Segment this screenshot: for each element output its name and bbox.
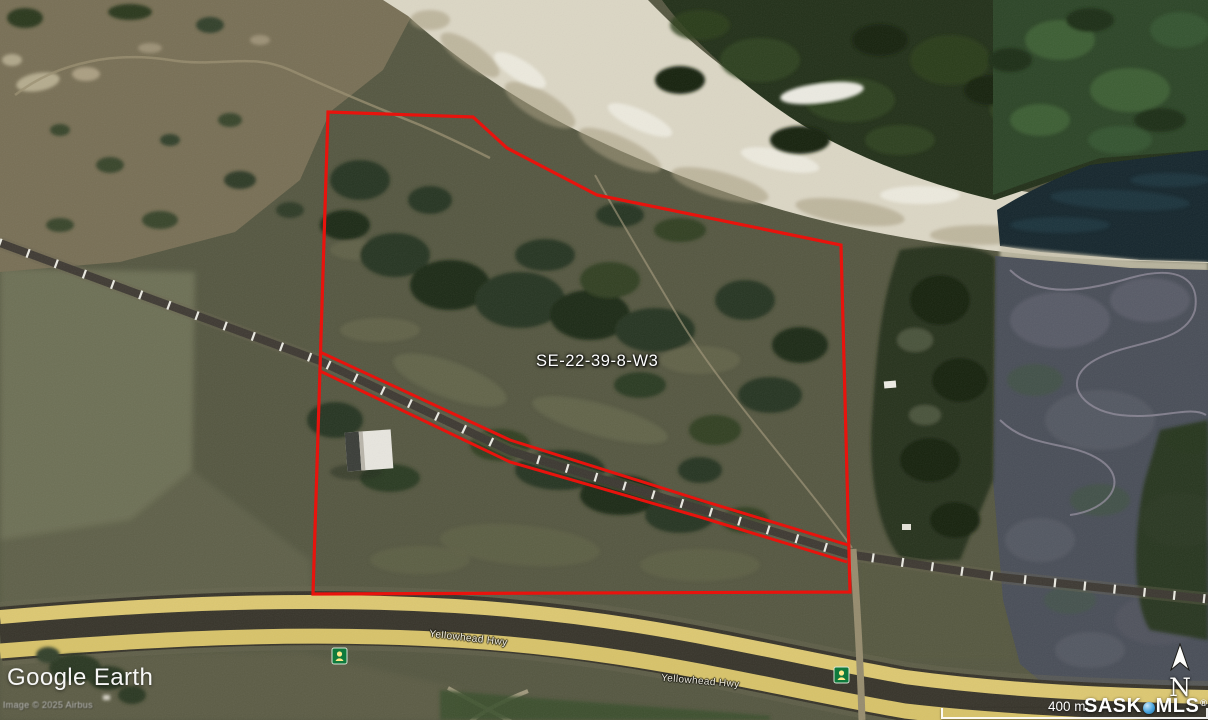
- registered-mark: ®: [1200, 698, 1207, 708]
- yellowhead-hwy-16-shield-icon: [332, 648, 347, 664]
- sask-text: SASK: [1084, 695, 1142, 718]
- north-label: N: [1162, 676, 1198, 700]
- north-arrow-icon: [1162, 643, 1198, 671]
- google-earth-logo: Google Earth: [7, 664, 153, 692]
- imagery-copyright: Image © 2025 Airbus: [3, 700, 93, 710]
- google-earth-map-view[interactable]: SE-22-39-8-W3 Yellowhead Hwy Yellowhead …: [0, 0, 1208, 720]
- mls-dot-icon: [1143, 702, 1155, 714]
- compass-north-indicator: N: [1162, 643, 1198, 700]
- parcel-label: SE-22-39-8-W3: [536, 352, 658, 371]
- yellowhead-hwy-16-shield-icon: [834, 667, 849, 683]
